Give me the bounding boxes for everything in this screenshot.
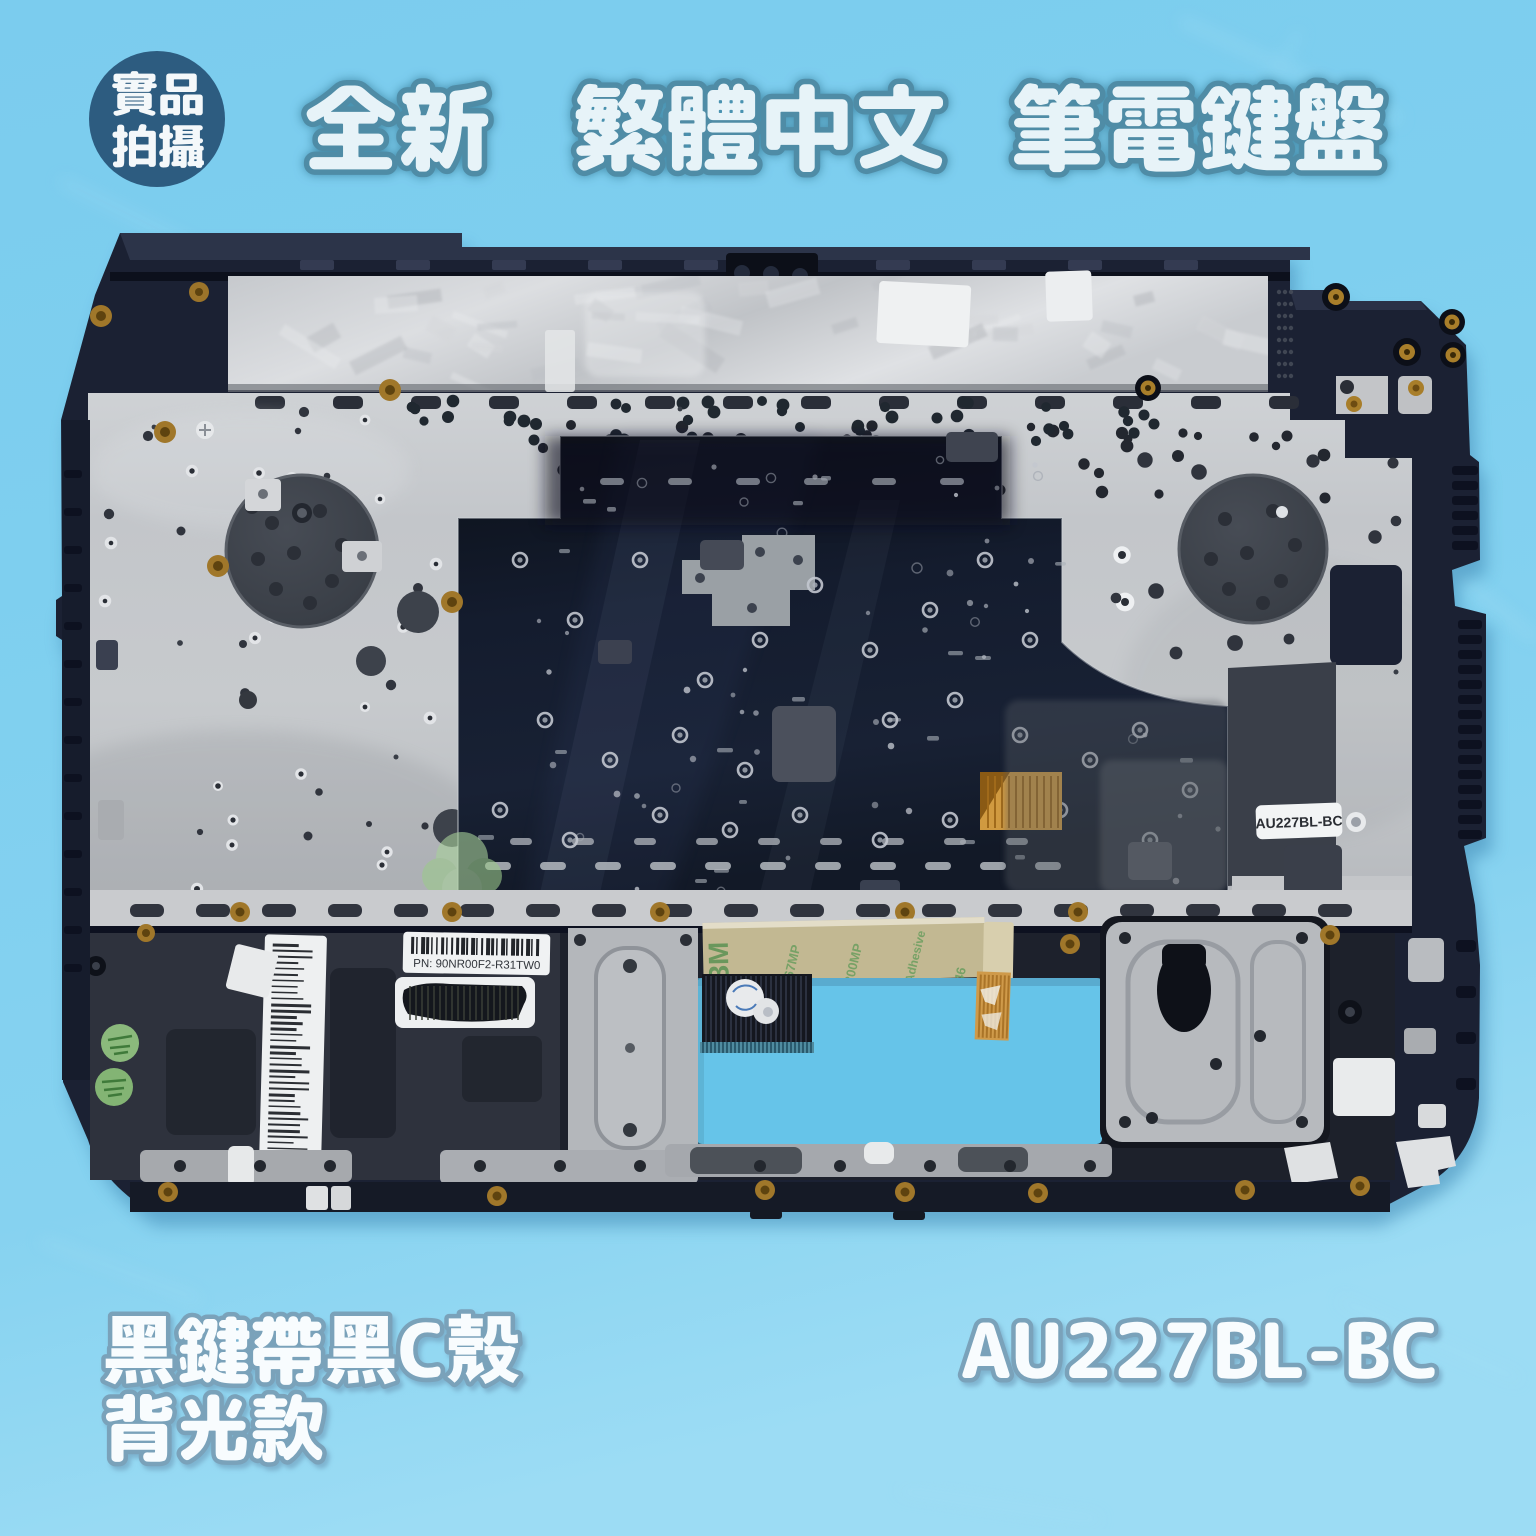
svg-text:AU227BL-BC: AU227BL-BC	[1255, 812, 1343, 831]
svg-text:PN: 90NR00F2-R31TW0: PN: 90NR00F2-R31TW0	[413, 958, 540, 972]
